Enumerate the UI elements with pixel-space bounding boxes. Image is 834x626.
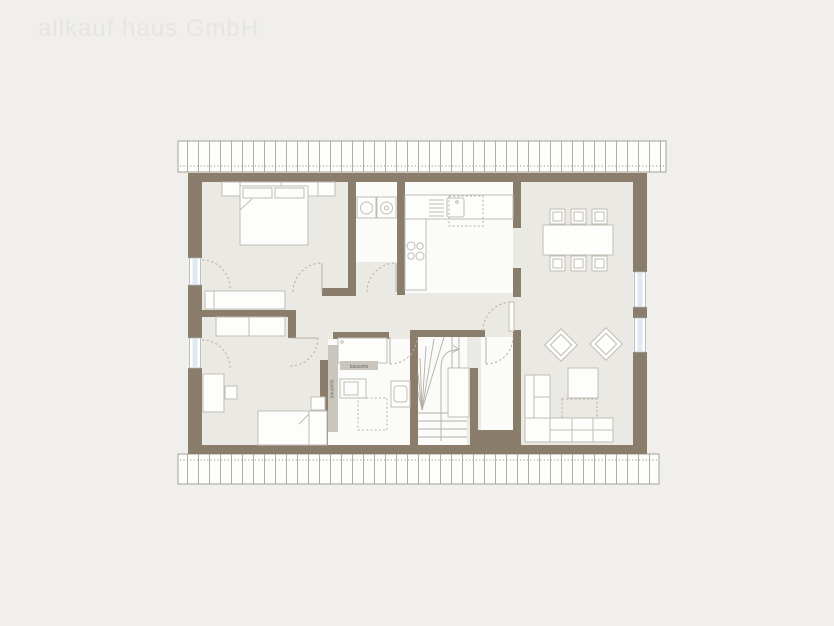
stair-wall: [470, 368, 478, 430]
roof-hatch-top: [178, 141, 666, 172]
exterior-wall-left: [188, 285, 202, 338]
tumble-dryer: [377, 197, 396, 218]
shower: [338, 338, 387, 363]
dining-chair: [550, 209, 565, 224]
toilet: [391, 381, 410, 407]
dresser: [216, 317, 249, 336]
pillow: [275, 188, 304, 198]
watermark-text: allkauf haus GmbH: [38, 15, 259, 42]
dining-chair: [550, 256, 565, 271]
dining-chair: [571, 256, 586, 271]
interior-wall: [202, 310, 293, 317]
exterior-wall-left: [188, 173, 202, 258]
interior-wall: [513, 182, 521, 228]
double-bed: [240, 186, 308, 245]
door-leaf: [509, 302, 514, 331]
dresser: [249, 317, 285, 336]
knee-wall: [470, 430, 521, 445]
exterior-wall-bottom: [188, 445, 647, 454]
interior-wall-pier: [513, 268, 521, 297]
single-bed: [258, 411, 327, 445]
interior-wall-stub: [288, 310, 296, 338]
bauseits-label-vertical: bauseits: [330, 379, 336, 398]
kitchen-counter: [405, 195, 513, 219]
dining-chair: [592, 256, 607, 271]
window: [190, 258, 201, 285]
exterior-wall-right: [633, 173, 647, 272]
bauseits-label: bauseits: [350, 364, 369, 370]
washbasin: [340, 379, 366, 398]
interior-wall: [397, 182, 405, 295]
desk: [203, 374, 224, 412]
dining-chair: [592, 209, 607, 224]
roof-hatch-bottom: [178, 454, 659, 484]
exterior-wall-top: [188, 173, 647, 182]
dining-table: [543, 225, 613, 255]
window: [635, 272, 646, 307]
nightstand: [311, 397, 325, 410]
exterior-wall-left: [188, 368, 202, 454]
window: [190, 338, 201, 368]
sideboard: [205, 291, 285, 309]
interior-wall: [513, 330, 521, 445]
dining-chair: [571, 209, 586, 224]
stair-landing: [448, 368, 469, 417]
coffee-table: [568, 368, 598, 398]
dining-area: [543, 209, 613, 271]
interior-wall: [322, 288, 356, 296]
interior-wall: [348, 182, 356, 295]
desk-chair: [225, 386, 237, 399]
washing-machine: [357, 197, 376, 218]
exterior-wall-right: [633, 307, 647, 318]
stair-wall: [410, 330, 485, 337]
pillow: [243, 188, 272, 198]
utility-room-floor: [356, 182, 397, 262]
exterior-wall-right: [633, 352, 647, 454]
floor-plan-page: allkauf haus GmbH: [0, 0, 834, 626]
window: [635, 318, 646, 352]
floor-plan-drawing: allkauf haus GmbH: [0, 0, 834, 626]
utility-room: [357, 197, 396, 218]
